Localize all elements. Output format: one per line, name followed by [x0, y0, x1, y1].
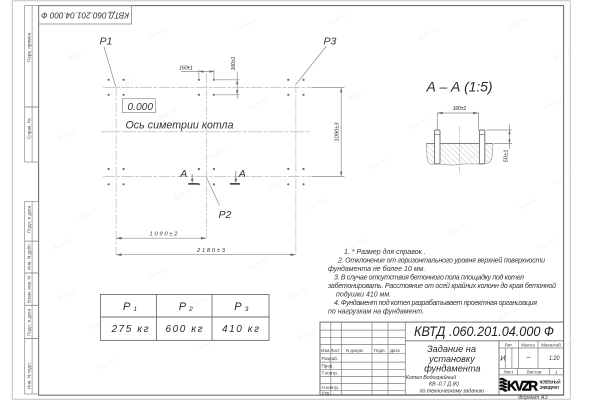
svg-text:ЗАВОД РЭП: ЗАВОД РЭП — [540, 385, 560, 390]
svg-text:Подп. и дата: Подп. и дата — [27, 308, 32, 336]
svg-text:фундамента не более 10 мм.: фундамента не более 10 мм. — [328, 265, 425, 273]
svg-text:Дата: Дата — [390, 348, 400, 353]
svg-text:N докум.: N докум. — [346, 348, 364, 353]
svg-text:по техническому заданию: по техническому заданию — [420, 389, 484, 395]
svg-text:4. Фундамент под котел разраб: 4. Фундамент под котел разрабатывает про… — [334, 299, 537, 307]
svg-text:Инв. N подл.: Инв. N подл. — [27, 362, 32, 389]
svg-text:–: – — [527, 354, 531, 361]
svg-text:50±1: 50±1 — [504, 150, 510, 163]
svg-text:Подп.: Подп. — [374, 348, 386, 353]
svg-text:Масса: Масса — [521, 342, 535, 347]
svg-text:А: А — [238, 168, 246, 180]
svg-text:Р2: Р2 — [219, 209, 232, 221]
svg-text:2. Отклонение от горизонтальн: 2. Отклонение от горизонтального уровня … — [337, 257, 545, 265]
svg-text:275 кг: 275 кг — [111, 324, 149, 335]
svg-text:забетонировать. Расстояние от: забетонировать. Расстояние от осей крайн… — [327, 282, 556, 290]
svg-text:Пров.: Пров. — [322, 363, 334, 368]
svg-text:Р1: Р1 — [100, 36, 113, 48]
svg-text:3. В случае отсутствия бетонн: 3. В случае отсутствия бетонного пола пл… — [334, 274, 524, 282]
svg-text:по нагрузкам на фундамент.: по нагрузкам на фундамент. — [328, 308, 424, 316]
svg-text:Лист: Лист — [504, 370, 515, 375]
svg-text:Подп. и дата: Подп. и дата — [27, 205, 32, 233]
svg-text:160±1: 160±1 — [179, 65, 193, 71]
svg-text:Масштаб: Масштаб — [541, 342, 561, 347]
svg-text:Утв.: Утв. — [322, 390, 331, 395]
svg-text:Листов: Листов — [527, 370, 542, 375]
svg-text:установку: установку — [428, 354, 476, 364]
svg-text:А – А (1:5): А – А (1:5) — [426, 79, 493, 95]
svg-text:А: А — [179, 168, 187, 180]
svg-text:Задание на: Задание на — [427, 344, 476, 354]
svg-text:Справ. №: Справ. № — [27, 118, 32, 139]
svg-text:Ось симетрии котла: Ось симетрии котла — [126, 119, 234, 131]
svg-text:Формат А3: Формат А3 — [518, 395, 548, 400]
svg-text:Р3: Р3 — [324, 36, 337, 48]
svg-text:фундамента: фундамента — [424, 363, 480, 373]
svg-text:КВТД.060.201.04.000 Ф: КВТД.060.201.04.000 Ф — [41, 10, 129, 19]
svg-text:Изм.Лист: Изм.Лист — [321, 348, 340, 353]
svg-text:Лит.: Лит. — [504, 342, 513, 347]
svg-text:1:20: 1:20 — [549, 355, 560, 362]
svg-text:Перв. примен.: Перв. примен. — [27, 31, 32, 62]
svg-text:Котел Водогрейный: Котел Водогрейный — [406, 374, 456, 381]
svg-text:160±1: 160±1 — [453, 106, 467, 112]
svg-text:KVZR: KVZR — [507, 378, 538, 393]
svg-text:0.000: 0.000 — [128, 102, 154, 113]
svg-text:КВ -0,7 Д (К): КВ -0,7 Д (К) — [429, 381, 459, 387]
svg-text:Т.контр.: Т.контр. — [322, 371, 339, 376]
svg-text:600 кг: 600 кг — [166, 324, 203, 335]
svg-text:КВТД .060.201.04.000 Ф: КВТД .060.201.04.000 Ф — [414, 323, 554, 339]
svg-text:1: 1 — [555, 370, 558, 375]
svg-text:1090±3: 1090±3 — [335, 122, 341, 142]
svg-text:Разраб.: Разраб. — [322, 356, 339, 361]
svg-text:И: И — [500, 353, 506, 362]
svg-text:1090±2: 1090±2 — [150, 232, 179, 238]
svg-text:160±1: 160±1 — [231, 57, 237, 71]
svg-text:подушки 410 мм.: подушки 410 мм. — [336, 291, 391, 299]
svg-text:410 кг: 410 кг — [222, 324, 259, 335]
svg-text:Инв. N дубл.: Инв. N дубл. — [27, 243, 32, 270]
svg-text:Взам. инв. N: Взам. инв. N — [27, 276, 32, 303]
svg-text:КОТЕЛЬНЫЙ: КОТЕЛЬНЫЙ — [540, 379, 561, 384]
svg-text:1. * Размер для справок .: 1. * Размер для справок . — [344, 248, 426, 256]
